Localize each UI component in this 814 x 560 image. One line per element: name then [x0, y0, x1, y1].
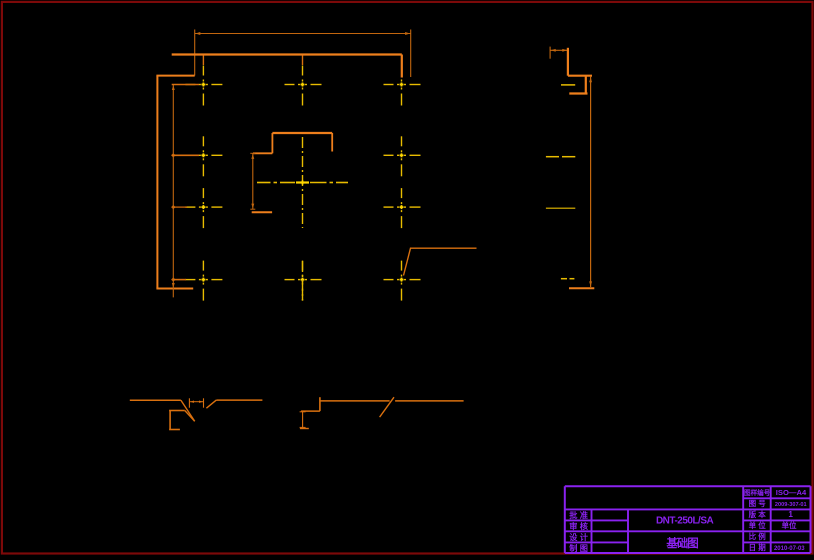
svg-text:日 期: 日 期 [749, 542, 767, 552]
svg-text:DNT-250L/SA: DNT-250L/SA [656, 515, 714, 526]
svg-text:基础图: 基础图 [665, 536, 698, 550]
svg-text:制 图: 制 图 [569, 543, 588, 553]
svg-text:2010-07-03: 2010-07-03 [774, 546, 805, 552]
svg-text:单位: 单位 [782, 520, 797, 530]
svg-text:图 号: 图 号 [749, 499, 767, 508]
svg-text:单 位: 单 位 [749, 520, 767, 530]
svg-text:图样编号: 图样编号 [744, 488, 771, 497]
svg-text:比 例: 比 例 [749, 531, 767, 541]
svg-text:2009-307-01: 2009-307-01 [775, 502, 807, 508]
svg-text:1: 1 [788, 510, 793, 519]
svg-text:审 核: 审 核 [569, 521, 588, 531]
svg-text:版 本: 版 本 [748, 509, 767, 519]
svg-text:ISO—A4: ISO—A4 [776, 488, 807, 497]
svg-text:设 计: 设 计 [569, 532, 588, 542]
svg-text:批 准: 批 准 [569, 510, 588, 520]
